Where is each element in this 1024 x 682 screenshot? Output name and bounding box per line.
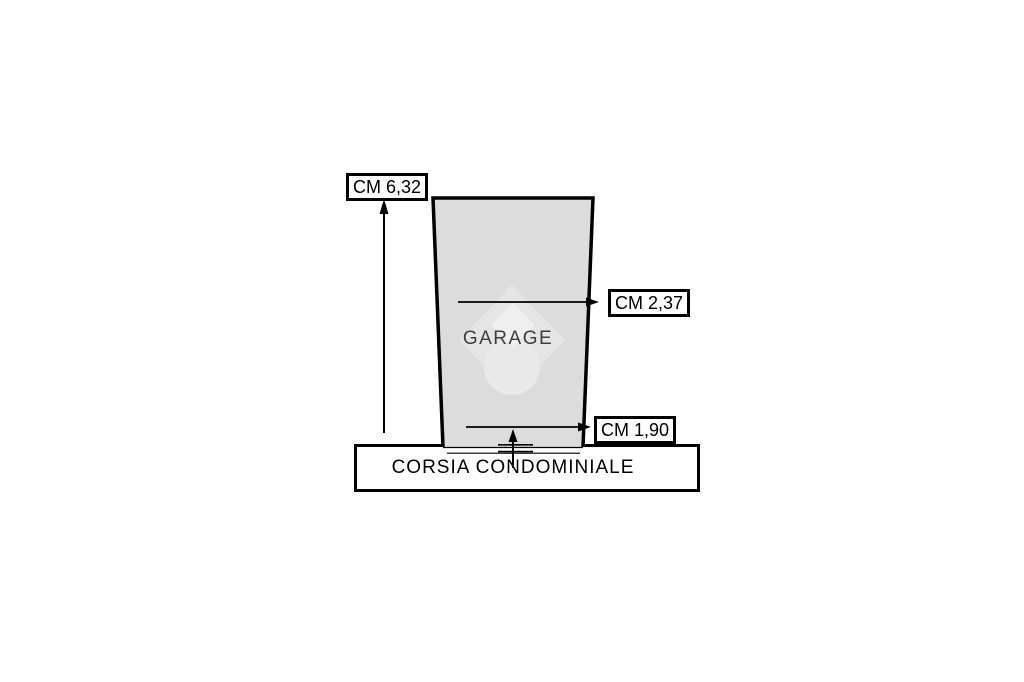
height-measurement-label: CM 6,32 (346, 173, 428, 201)
height-arrow (380, 199, 389, 433)
depth-lower-measurement-label: CM 1,90 (594, 416, 676, 444)
garage-room-label: GARAGE (433, 328, 583, 350)
depth-upper-measurement-label: CM 2,37 (608, 289, 690, 317)
garage-floorplan-diagram: CM 6,32 CM 2,37 CM 1,90 GARAGE CORSIA CO… (0, 0, 1024, 682)
corsia-label: CORSIA CONDOMINIALE (392, 457, 635, 479)
corsia-bar: CORSIA CONDOMINIALE (354, 444, 700, 492)
